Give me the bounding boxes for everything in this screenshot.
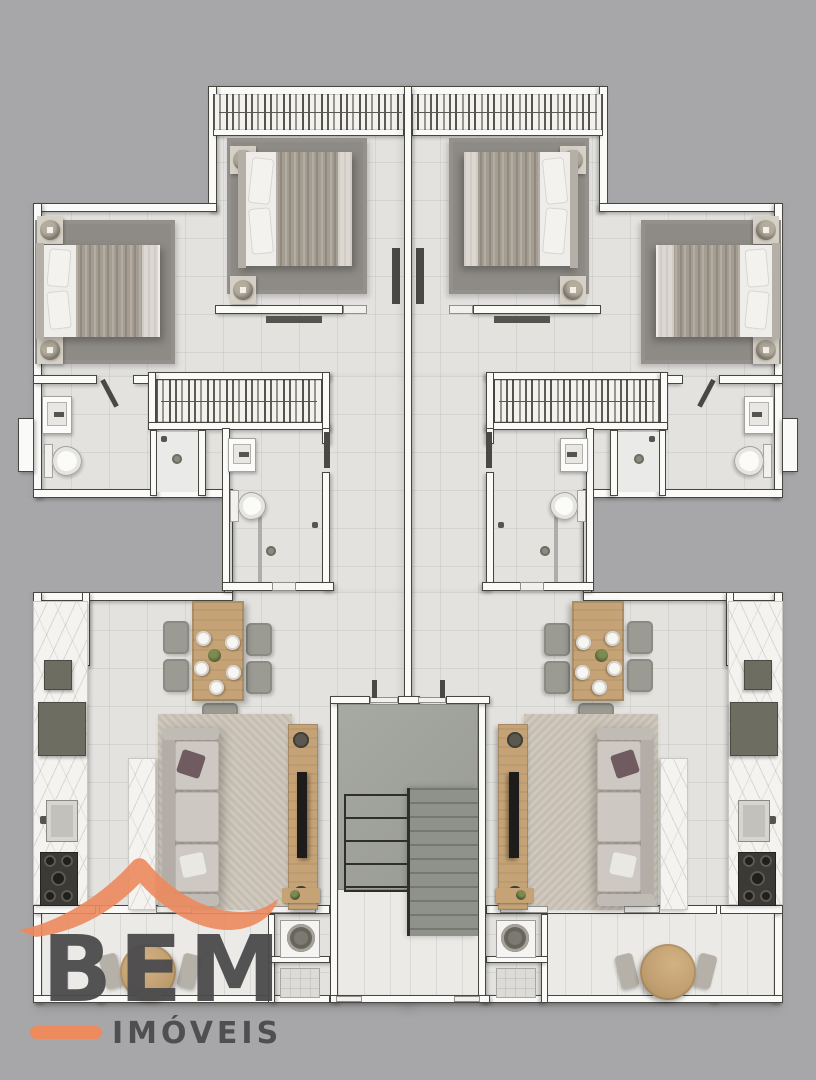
brand-name: BEM bbox=[42, 924, 288, 1016]
brand-logo: BEM IMÓVEIS bbox=[0, 0, 816, 1080]
floor-plan-canvas: BEM IMÓVEIS bbox=[0, 0, 816, 1080]
brand-suffix: IMÓVEIS bbox=[112, 1019, 282, 1049]
brand-accent-bar bbox=[30, 1026, 102, 1039]
